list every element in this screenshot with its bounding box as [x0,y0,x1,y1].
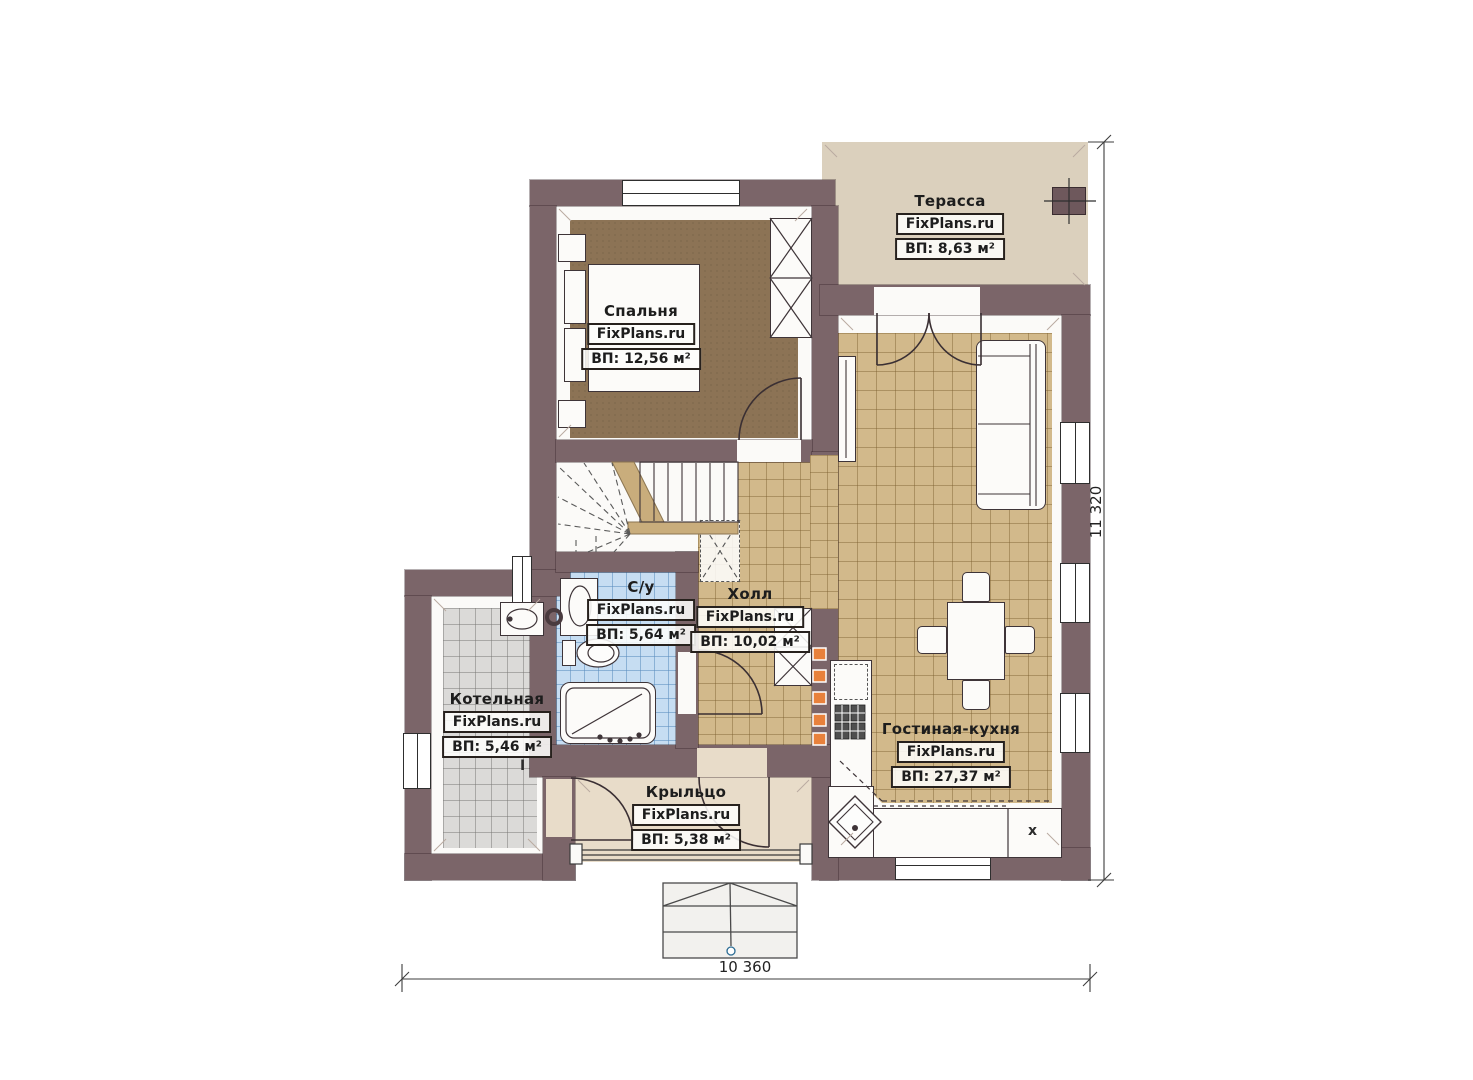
nightstand [558,400,586,428]
closet-hall-overhead [700,520,740,582]
window-living-3 [1060,693,1090,753]
area-box: ВП: 12,56 м² [581,348,701,370]
opening-bathroom-door [678,652,696,714]
brand-box: FixPlans.ru [587,599,695,621]
room-label-hall: Холл FixPlans.ru ВП: 10,02 м² [690,585,810,653]
stair-flight-base [640,462,738,522]
window-boiler [403,733,431,789]
entry-steps [663,883,797,958]
brand-box: FixPlans.ru [896,213,1004,235]
room-name: С/у [627,578,654,596]
opening-bedroom-door [737,440,801,462]
chair [917,626,947,654]
duct-stack [512,556,532,604]
area-box: ВП: 5,64 м² [586,624,696,646]
room-label-bathroom: С/у FixPlans.ru ВП: 5,64 м² [586,578,696,646]
area-box: ВП: 5,38 м² [631,829,741,851]
brand-box: FixPlans.ru [897,741,1005,763]
wall-bedroom-right [812,206,838,452]
opening-hall-living [810,455,838,609]
boiler-sink [500,602,544,636]
room-name: Крыльцо [646,783,727,801]
opening-terrace-doors [874,287,980,315]
opening-front-door [697,748,767,777]
dimension-height-label: 11 320 [1087,477,1105,547]
area-box: ВП: 8,63 м² [895,238,1005,260]
wardrobe-bedroom [770,218,812,338]
fridge [834,664,868,700]
room-name: Холл [727,585,772,603]
area-box: ВП: 5,46 м² [442,736,552,758]
kitchen-corner-sink-counter [828,786,874,858]
tv-panel [838,356,856,462]
room-name: Котельная [450,690,545,708]
floor-plan-canvas: Терасса FixPlans.ru ВП: 8,63 м² Спальня … [0,0,1473,1080]
chair [962,572,990,602]
area-box: ВП: 27,37 м² [891,766,1011,788]
room-name: Гостиная-кухня [882,720,1020,738]
area-box: ВП: 10,02 м² [690,631,810,653]
boiler-door-marker: I [520,758,525,774]
room-label-boiler: Котельная FixPlans.ru ВП: 5,46 м² [442,690,552,758]
room-label-bedroom: Спальня FixPlans.ru ВП: 12,56 м² [581,302,701,370]
room-label-terrace: Терасса FixPlans.ru ВП: 8,63 м² [895,192,1005,260]
shower [560,682,656,744]
brand-box: FixPlans.ru [443,711,551,733]
sofa [976,340,1046,510]
brand-box: FixPlans.ru [696,606,804,628]
room-name: Спальня [604,302,678,320]
wall-porch-top [530,745,835,777]
room-label-living: Гостиная-кухня FixPlans.ru ВП: 27,37 м² [882,720,1020,788]
kitchen-sink-marker: x [1028,823,1037,839]
toilet-tank [562,640,576,666]
wall-bathroom-top [556,552,698,572]
brand-box: FixPlans.ru [632,804,740,826]
opening-boiler-porch-door [546,779,572,837]
wall-boiler-top [405,570,570,596]
window-living-2 [1060,563,1090,623]
brand-box: FixPlans.ru [587,323,695,345]
chair [962,680,990,710]
terrace-column [1052,187,1086,215]
window-living-1 [1060,422,1090,484]
room-label-porch: Крыльцо FixPlans.ru ВП: 5,38 м² [631,783,741,851]
window-bedroom [622,180,740,206]
chair [1005,626,1035,654]
dimension-width-label: 10 360 [700,958,790,976]
room-name: Терасса [914,192,985,210]
dining-table [947,602,1005,680]
nightstand [558,234,586,262]
